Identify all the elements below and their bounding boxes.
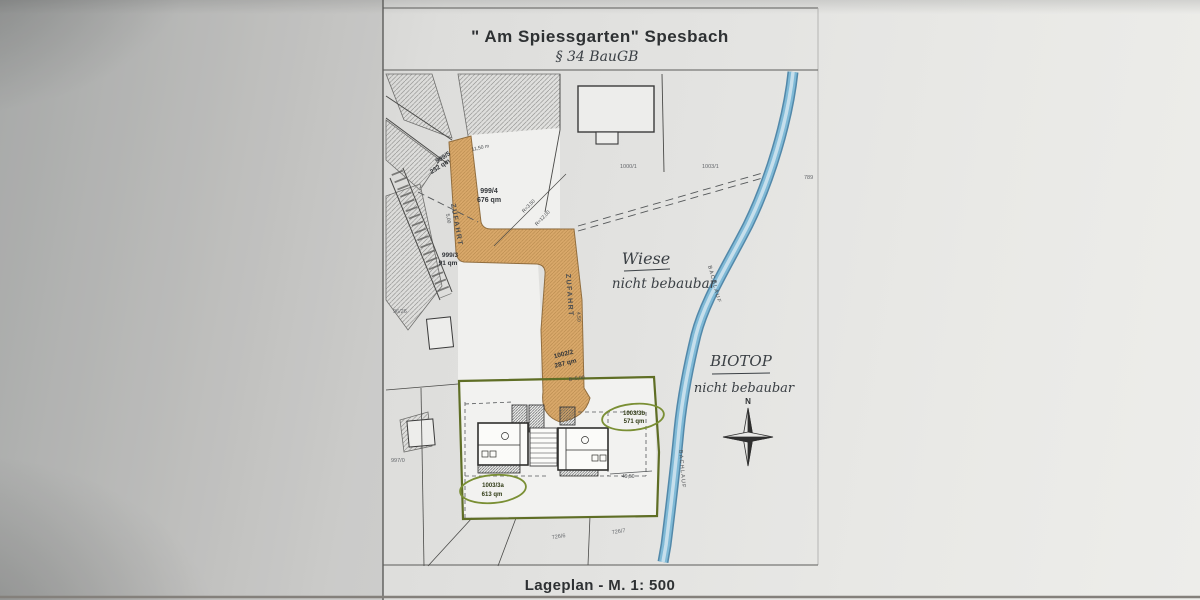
parcel-726-6-id: 726/6 — [551, 533, 565, 541]
wiese-note: nicht bebaubar — [612, 276, 718, 292]
house-2 — [558, 428, 608, 476]
parcel-726-7-id: 726/7 — [611, 528, 625, 536]
dim-width-mid: 4,50 — [575, 312, 582, 322]
dim-width-upper: 5,00 — [444, 213, 452, 224]
paper-shadow — [0, 0, 383, 600]
house-1 — [478, 423, 528, 473]
parcel-999-3-id: 999/3 — [442, 252, 459, 259]
parcel-999-4-area: 676 qm — [477, 197, 501, 204]
compass-north-label: N — [745, 397, 751, 406]
parcel-789-id: 789 — [804, 175, 813, 181]
parcel-1003-3b-id: 1003/3b — [623, 411, 645, 417]
parcel-96-26-id: 96/26 — [393, 309, 407, 315]
parcel-999-4-id: 999/4 — [480, 188, 498, 195]
parcel-1000-1-id: 1000/1 — [620, 164, 637, 170]
parcel-1003-1-id: 1003/1 — [702, 164, 719, 170]
parcel-1003-3b-area: 571 qm — [624, 419, 645, 425]
biotop-note: nicht bebaubar — [694, 381, 795, 396]
parcel-1003-3a-area: 613 qm — [482, 492, 503, 498]
compass-icon — [723, 408, 773, 466]
wiese-title: Wiese — [622, 249, 670, 268]
dim-plot: 49,50 — [622, 474, 635, 480]
site-plan-drawing: " Am Spiessgarten" Spesbach § 34 BauGB L… — [0, 0, 1200, 600]
biotop-underline — [712, 373, 770, 374]
parcel-997-0-id: 997/0 — [391, 458, 405, 464]
parcel-999-3-area: 91 qm — [439, 260, 458, 267]
biotop-title: BIOTOP — [709, 352, 773, 370]
wiese-underline — [624, 269, 670, 271]
parcel-1003-3a-id: 1003/3a — [482, 483, 504, 489]
plan-title: " Am Spiessgarten" Spesbach — [471, 27, 729, 46]
scale-caption: Lageplan - M. 1: 500 — [525, 577, 676, 594]
plan-subtitle: § 34 BauGB — [556, 49, 639, 65]
site-plan-photo: " Am Spiessgarten" Spesbach § 34 BauGB L… — [0, 0, 1200, 600]
